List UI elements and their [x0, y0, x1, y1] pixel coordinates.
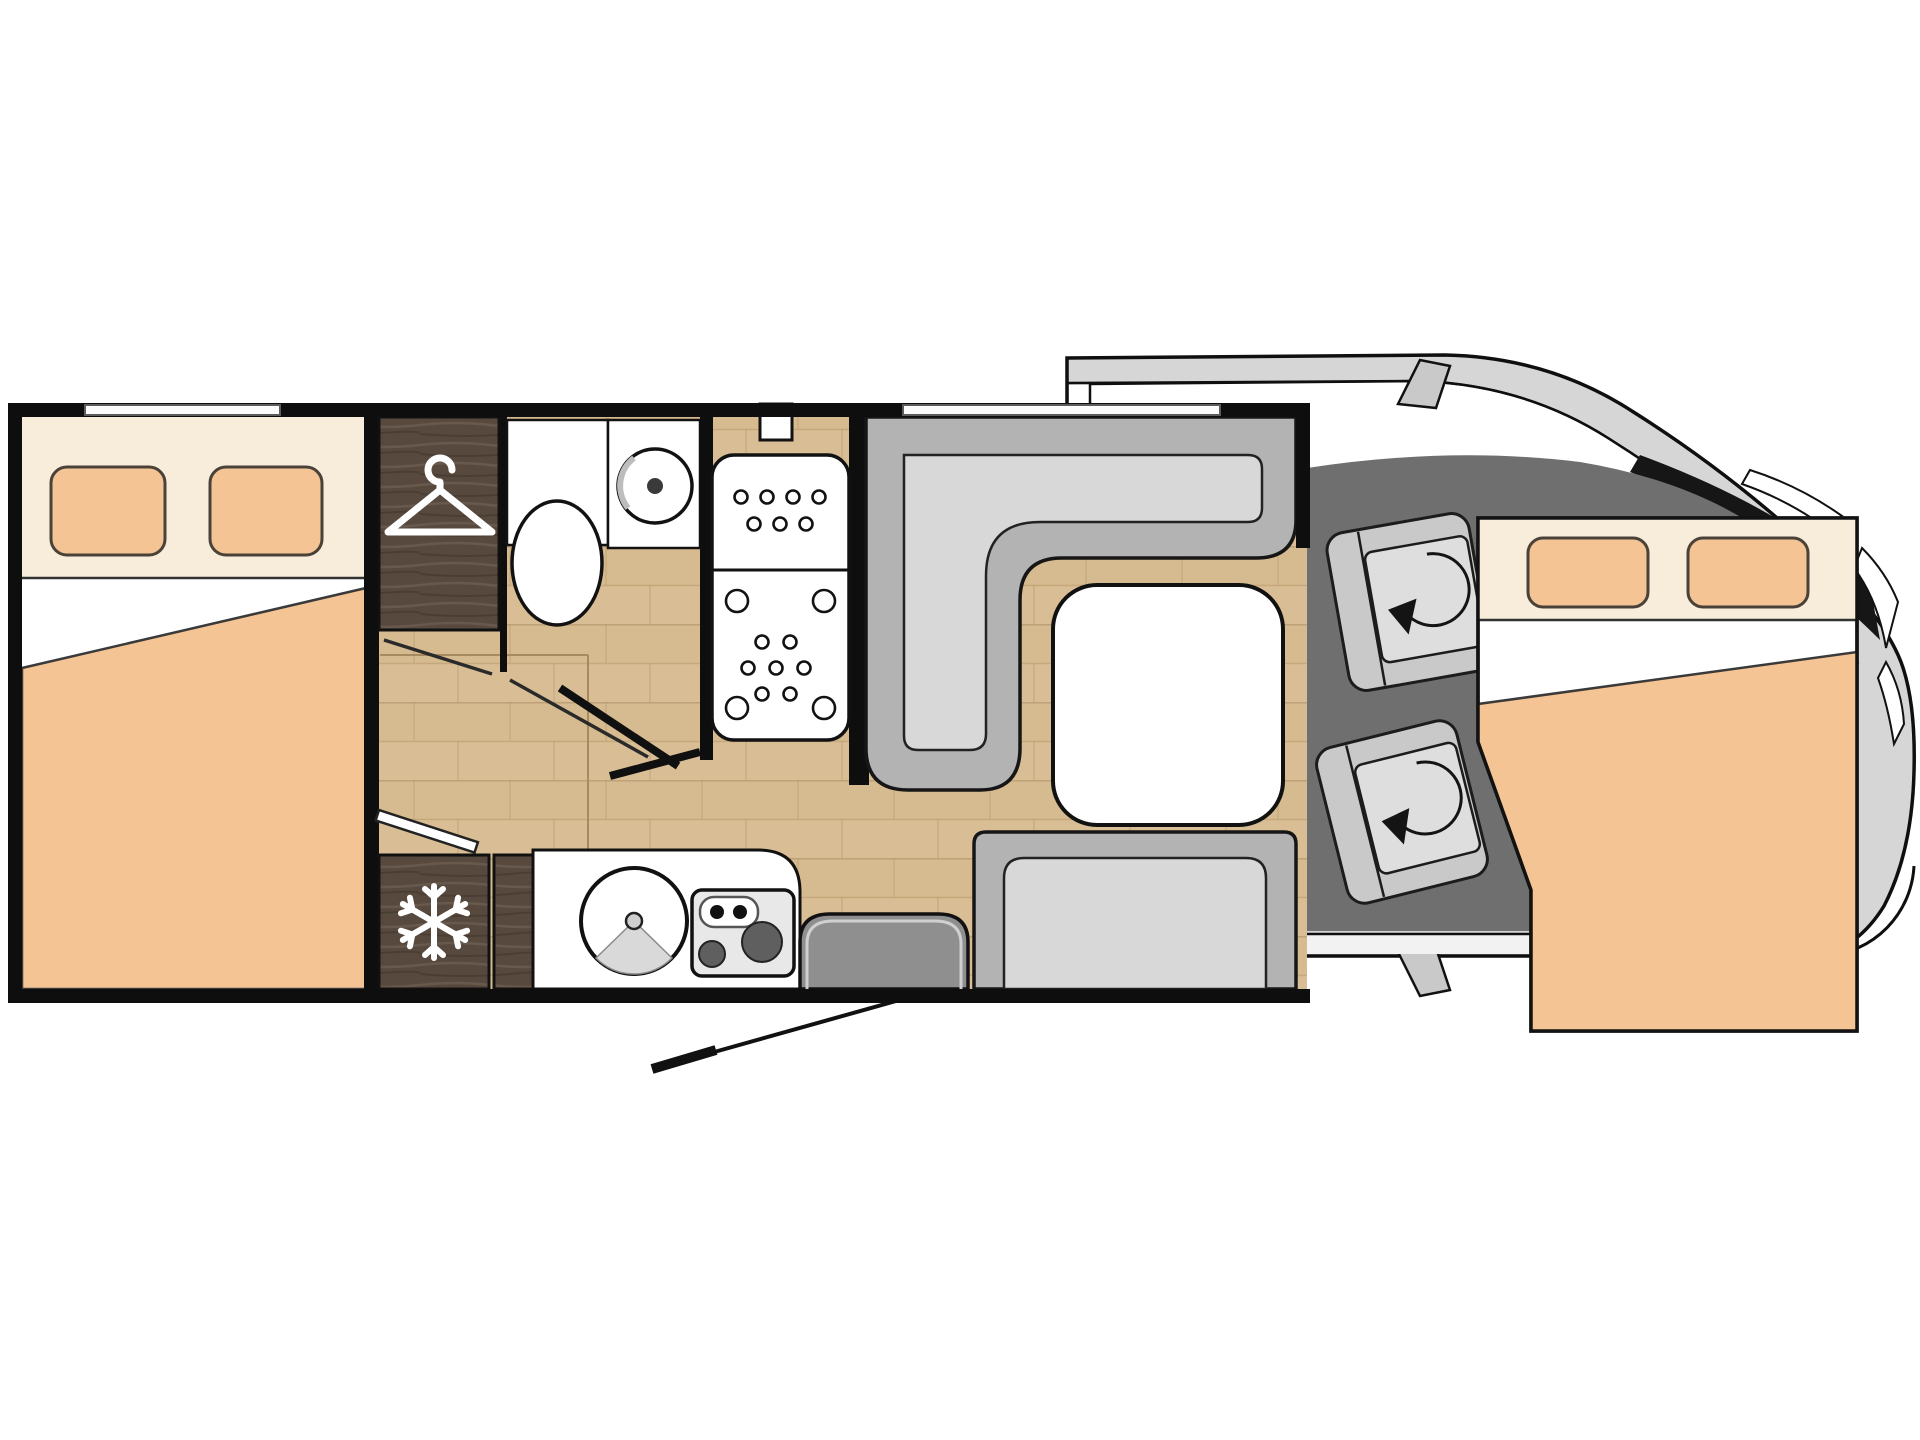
pillow: [1528, 538, 1648, 607]
kitchen: [379, 850, 800, 989]
toilet: [512, 501, 602, 625]
window: [85, 405, 280, 415]
bed-divider-wall: [364, 417, 379, 989]
cab-bulkhead-stub: [1296, 403, 1310, 548]
burner-small: [699, 941, 725, 967]
bench-seat: [974, 832, 1296, 989]
kitchen-sink: [581, 868, 687, 974]
duvet: [1478, 652, 1857, 1031]
washbasin: [618, 449, 692, 523]
burner-large: [742, 922, 782, 962]
entry-door: [800, 914, 968, 989]
shower: [700, 404, 869, 785]
drop-down-bed: [1478, 518, 1857, 1031]
floorplan-page: [0, 0, 1920, 1440]
window: [903, 405, 1220, 415]
pillow: [210, 467, 322, 555]
pillow: [1688, 538, 1808, 607]
cab-seat-driver: [1324, 511, 1494, 694]
entry-door-leaf: [652, 1050, 716, 1069]
wardrobe: [379, 417, 499, 630]
kitchen-cabinet: [494, 855, 533, 989]
hob-knob-plate: [700, 897, 758, 927]
floorplan-canvas: [0, 0, 1920, 1440]
entry-door-swing: [700, 999, 903, 1056]
pillow: [51, 467, 165, 555]
hob: [692, 890, 794, 976]
dinette-table: [1053, 585, 1283, 825]
rear-bed: [22, 417, 379, 989]
